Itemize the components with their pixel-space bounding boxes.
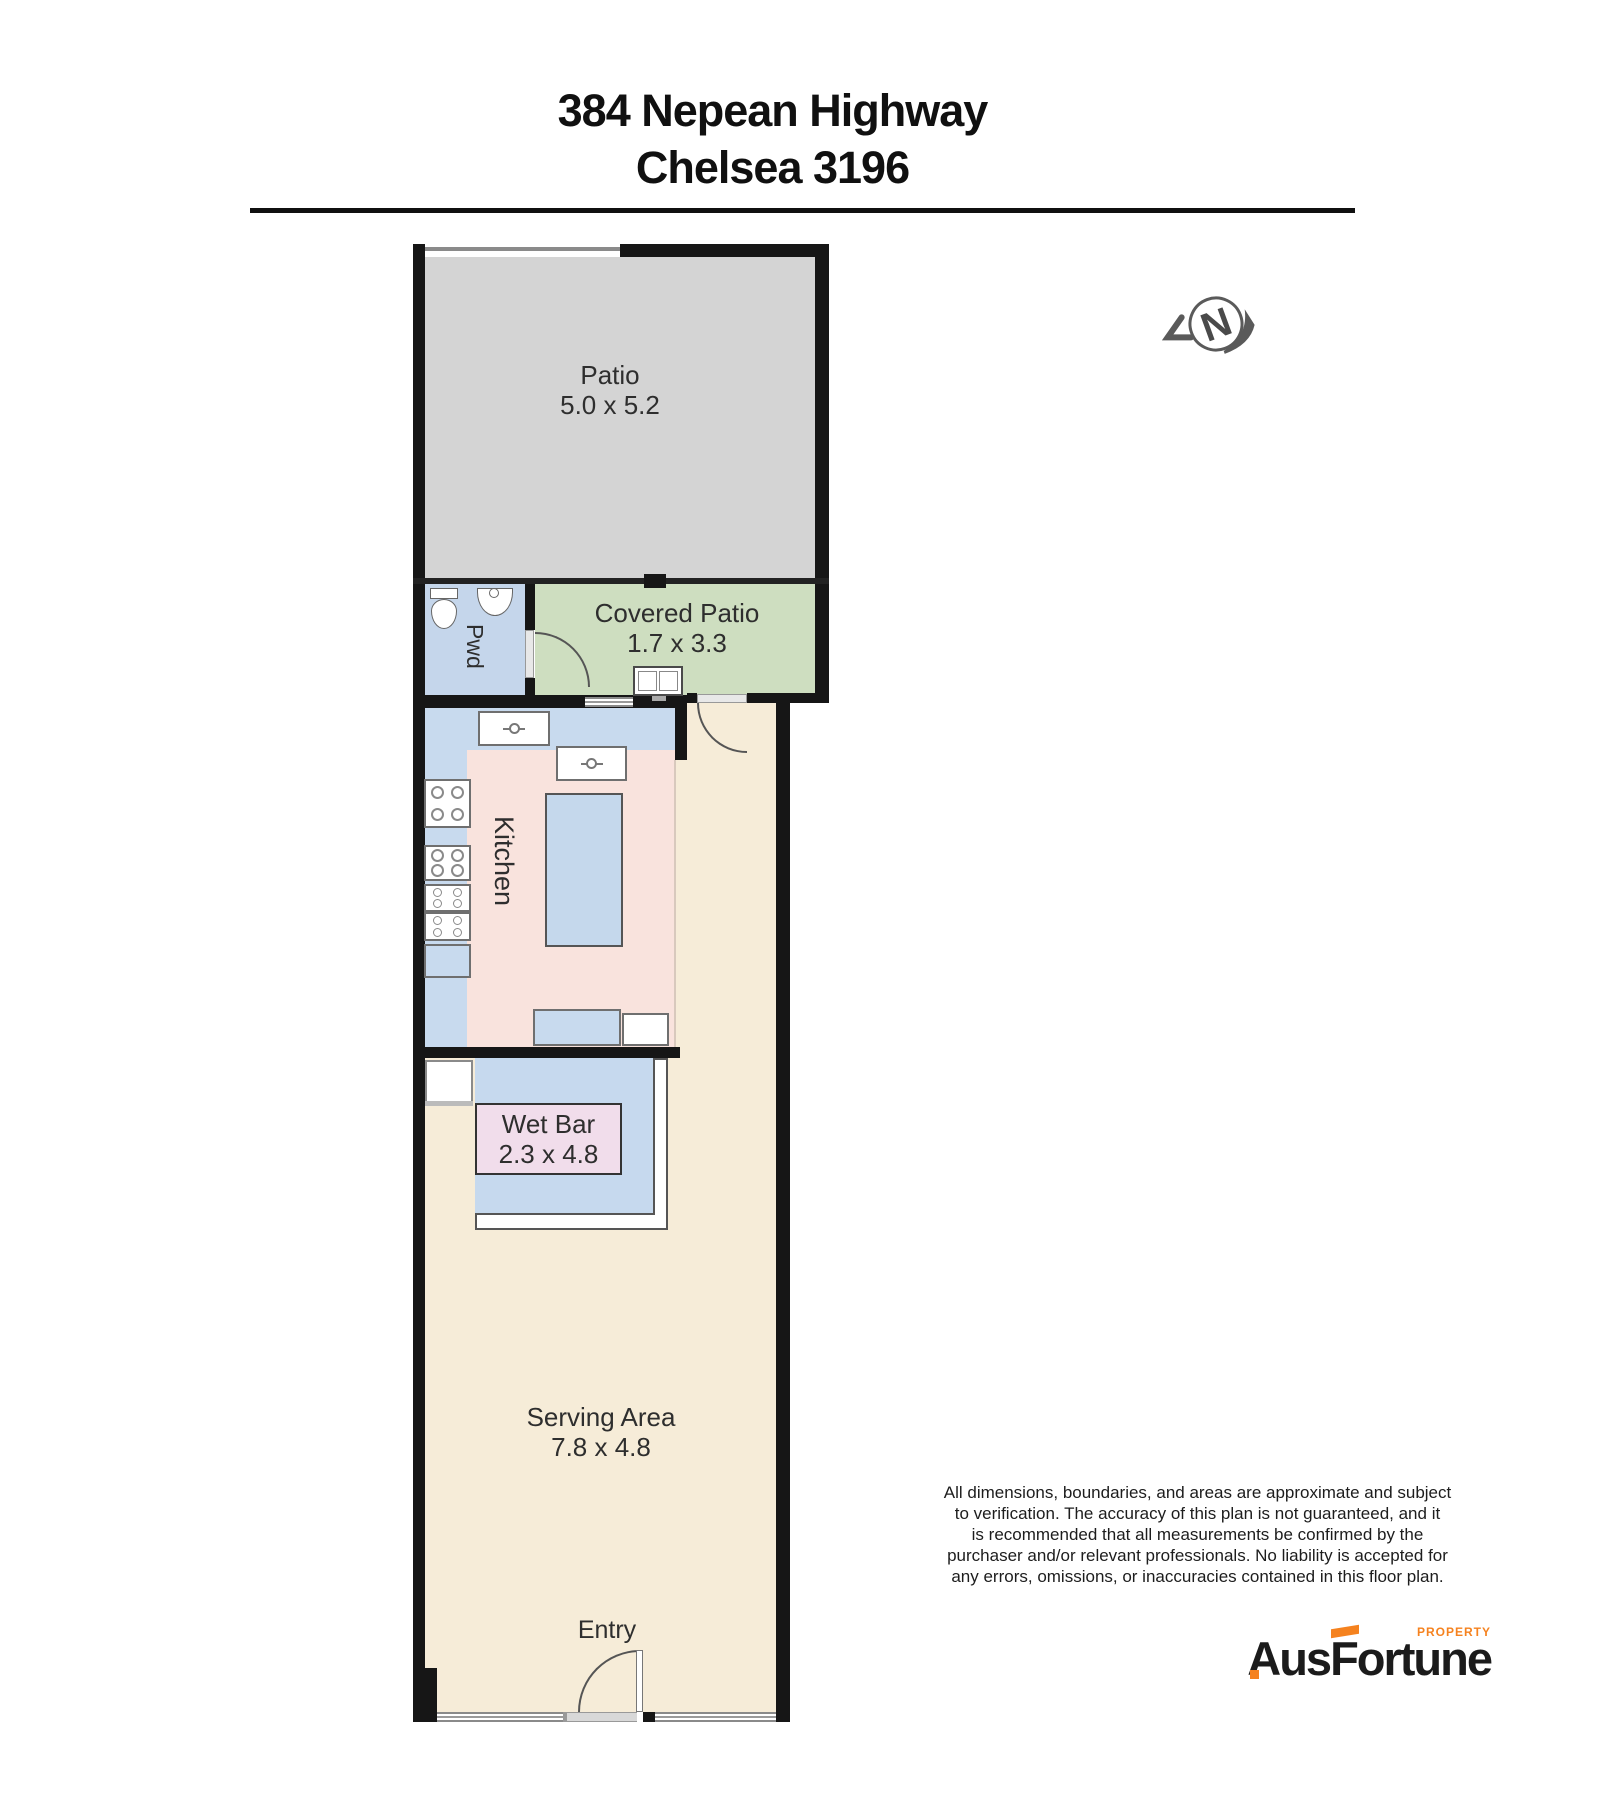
- wall-pwd-right-upper: [525, 584, 535, 630]
- kitchen-appliance: [424, 944, 471, 978]
- title-underline: [250, 208, 1355, 213]
- wall-bottom-pier: [643, 1712, 655, 1722]
- burner-icon: [453, 888, 462, 897]
- disclaimer-line: to verification. The accuracy of this pl…: [905, 1503, 1490, 1524]
- wall-patio-bottom: [413, 578, 829, 584]
- patio-label: Patio 5.0 x 5.2: [455, 360, 765, 420]
- wall-kitchen-right: [675, 700, 687, 760]
- entry-door-leaf: [636, 1650, 643, 1712]
- wall-kitchen-bottom: [413, 1047, 680, 1058]
- burner-icon: [453, 899, 462, 908]
- wetbar-appliance-base: [425, 1101, 473, 1106]
- wall-left: [413, 244, 425, 1722]
- kitchen-passthrough-window-icon: [585, 697, 633, 707]
- room-name: Wet Bar: [502, 1109, 595, 1139]
- agency-logo: PROPERTY AusFortune: [1243, 1626, 1491, 1680]
- pwd-label: Pwd: [461, 624, 488, 688]
- burner-icon: [433, 899, 442, 908]
- serving-door-leaf: [697, 694, 747, 703]
- kitchen-counter-top: [425, 708, 675, 750]
- room-dims: 5.0 x 5.2: [455, 390, 765, 420]
- covered-patio-window-icon: [633, 666, 683, 696]
- kitchen-bench: [533, 1009, 621, 1046]
- kitchen-island: [545, 793, 623, 947]
- floorplan-page: 384 Nepean Highway Chelsea 3196: [0, 0, 1600, 1800]
- logo-letter-f: F: [1330, 1632, 1357, 1685]
- toilet-icon: [430, 588, 458, 599]
- dishwasher-icon: [622, 1013, 669, 1046]
- page-title: 384 Nepean Highway Chelsea 3196: [0, 82, 1545, 196]
- entry-door-sill: [567, 1712, 637, 1722]
- room-name: Serving Area: [451, 1402, 751, 1432]
- bottom-window-right-icon: [655, 1712, 776, 1722]
- burner-icon: [431, 864, 444, 877]
- kitchen-sink-icon: [478, 711, 550, 746]
- room-name: Patio: [455, 360, 765, 390]
- window-pane: [638, 671, 657, 691]
- burner-icon: [431, 849, 444, 862]
- entry-label: Entry: [547, 1615, 667, 1645]
- cooktop-icon: [424, 845, 471, 881]
- burner-icon: [453, 928, 462, 937]
- faucet-icon: [586, 758, 597, 769]
- burner-icon: [451, 849, 464, 862]
- wall-step-right: [747, 693, 829, 703]
- burner-icon: [451, 786, 464, 799]
- kitchen-label: Kitchen: [488, 816, 519, 948]
- kitchen-sink-icon: [556, 746, 627, 781]
- burner-icon: [451, 864, 464, 877]
- window-pane: [659, 671, 678, 691]
- suburb-line: Chelsea 3196: [0, 139, 1545, 196]
- burner-icon: [431, 786, 444, 799]
- logo-text-prefix: Aus: [1247, 1632, 1330, 1685]
- room-dims: 2.3 x 4.8: [499, 1139, 599, 1169]
- disclaimer-line: All dimensions, boundaries, and areas ar…: [905, 1482, 1490, 1503]
- wall-bottom-left: [413, 1712, 437, 1722]
- burner-icon: [433, 928, 442, 937]
- disclaimer-line: is recommended that all measurements be …: [905, 1524, 1490, 1545]
- bottom-window-left-icon: [437, 1712, 563, 1722]
- burner-icon: [431, 808, 444, 821]
- address-line: 384 Nepean Highway: [0, 82, 1545, 139]
- faucet-icon: [509, 723, 520, 734]
- wall-patio-bottom-pier: [644, 574, 666, 588]
- disclaimer-line: purchaser and/or relevant professionals.…: [905, 1545, 1490, 1566]
- burner-icon: [433, 888, 442, 897]
- room-dims: 7.8 x 4.8: [451, 1432, 751, 1462]
- serving-area-label: Serving Area 7.8 x 4.8: [451, 1402, 751, 1462]
- cooktop-icon: [424, 884, 471, 912]
- logo-text-suffix: ortune: [1357, 1632, 1491, 1685]
- window-sill-stub: [652, 696, 666, 701]
- logo-wordmark: AusFortune: [1247, 1638, 1491, 1680]
- pwd-door-leaf: [525, 630, 534, 678]
- cooktop-icon: [424, 912, 471, 941]
- wall-bottom-right-corner: [776, 1712, 790, 1722]
- wall-right-lower: [776, 703, 790, 1722]
- logo-accent-square: [1250, 1670, 1259, 1679]
- burner-icon: [451, 808, 464, 821]
- wetbar-label-box: Wet Bar 2.3 x 4.8: [475, 1103, 622, 1175]
- patio-top-edge: [425, 247, 620, 251]
- basin-tap-icon: [489, 588, 499, 598]
- wall-pwd-right-lower: [525, 678, 535, 695]
- disclaimer-text: All dimensions, boundaries, and areas ar…: [905, 1482, 1490, 1587]
- wall-step-left: [687, 693, 697, 703]
- wall-patio-top: [620, 244, 829, 257]
- room-name: Covered Patio: [557, 598, 797, 628]
- disclaimer-line: any errors, omissions, or inaccuracies c…: [905, 1566, 1490, 1587]
- burner-icon: [433, 916, 442, 925]
- cooktop-icon: [424, 779, 471, 828]
- wall-right-upper: [815, 244, 829, 703]
- wall-kitchen-top: [413, 695, 687, 708]
- room-dims: 1.7 x 3.3: [557, 628, 797, 658]
- logo-f-glyph: F: [1330, 1632, 1357, 1685]
- kitchen-serving-boundary: [674, 760, 676, 1047]
- north-compass-icon: N: [1148, 270, 1278, 380]
- burner-icon: [453, 916, 462, 925]
- wetbar-appliance: [425, 1060, 473, 1103]
- covered-patio-label: Covered Patio 1.7 x 3.3: [557, 598, 797, 658]
